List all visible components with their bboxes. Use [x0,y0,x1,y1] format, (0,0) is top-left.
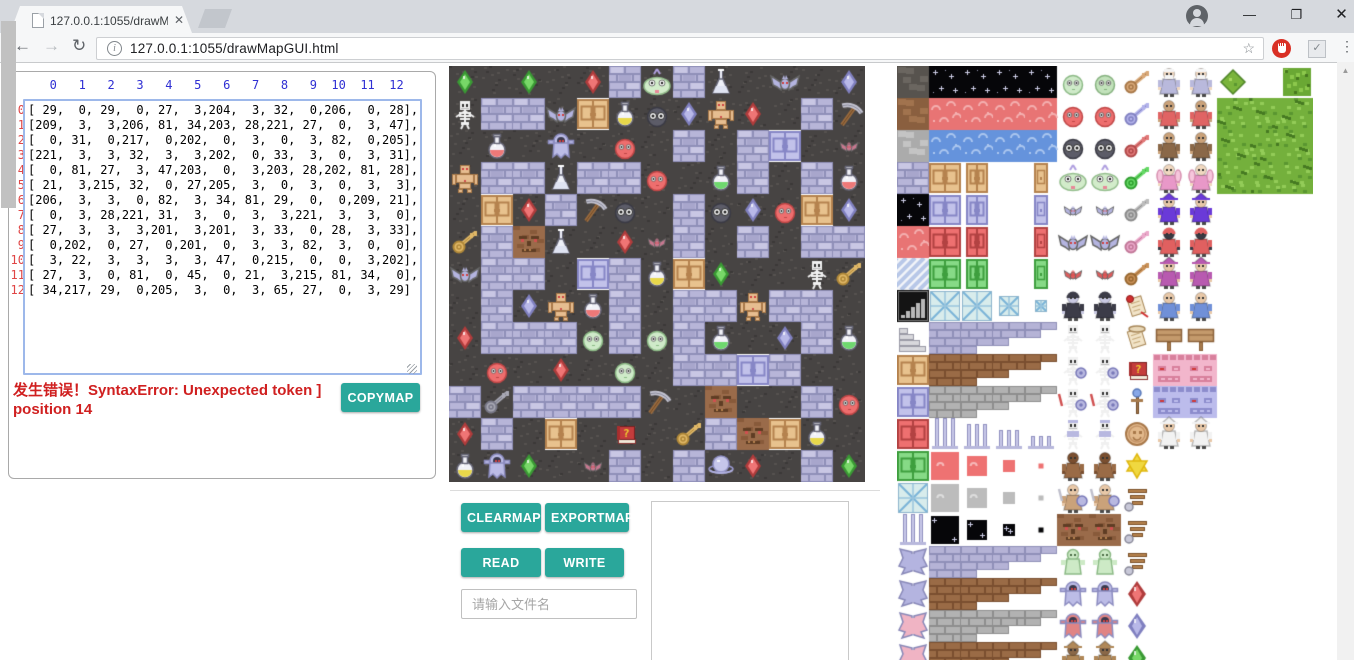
read-button[interactable]: READ [461,548,541,577]
exportmap-button[interactable]: EXPORTMAP [545,503,629,532]
reload-icon[interactable]: ↻ [72,36,86,56]
matrix-column-header: 0 1 2 3 4 5 6 7 8 9 10 11 12 [23,78,404,92]
map-matrix-textarea[interactable] [23,99,422,375]
error-message: 发生错误！SyntaxError: Unexpected token ] pos… [13,381,343,419]
page-scrollbar[interactable]: ▲ [1337,62,1354,660]
matrix-panel: 0 1 2 3 4 5 6 7 8 9 10 11 12 01234567891… [8,71,436,479]
browser-window: 127.0.0.1:1055/drawMa ✕ — ❐ ✕ ← → ↻ i 12… [0,0,1354,660]
tab-strip: 127.0.0.1:1055/drawMa ✕ — ❐ ✕ [0,0,1354,33]
scrollbar-up-arrow[interactable]: ▲ [1337,64,1354,78]
forward-icon[interactable]: → [43,36,60,56]
tab-title: 127.0.0.1:1055/drawMa [50,14,168,28]
filename-input[interactable] [461,589,637,619]
page-icon [32,13,44,28]
tab-close-icon[interactable]: ✕ [174,13,184,27]
close-button[interactable]: ✕ [1319,0,1354,30]
extension-hand-icon[interactable] [1272,39,1291,58]
scrollbar-thumb[interactable] [1,21,16,208]
output-box [651,501,849,660]
browser-tab[interactable]: 127.0.0.1:1055/drawMa ✕ [10,6,192,33]
new-tab-button[interactable] [198,9,232,28]
browser-menu-icon[interactable]: ⋮ [1340,38,1354,55]
copymap-button[interactable]: COPYMAP [341,383,420,412]
restore-button[interactable]: ❐ [1274,0,1319,30]
minimize-button[interactable]: — [1227,0,1272,30]
back-icon[interactable]: ← [14,36,31,56]
clearmap-button[interactable]: CLEARMAP [461,503,541,532]
bookmark-star-icon[interactable]: ☆ [1242,40,1255,57]
extension-check-icon[interactable]: ✓ [1308,40,1326,58]
tileset-canvas[interactable] [897,66,1313,660]
map-canvas[interactable] [449,66,865,482]
profile-icon[interactable] [1186,5,1208,27]
write-button[interactable]: WRITE [545,548,624,577]
page-info-icon[interactable]: i [107,41,122,56]
address-bar[interactable]: i 127.0.0.1:1055/drawMapGUI.html ☆ [96,37,1264,60]
url-text[interactable]: 127.0.0.1:1055/drawMapGUI.html [130,41,339,56]
divider-line [450,490,880,491]
